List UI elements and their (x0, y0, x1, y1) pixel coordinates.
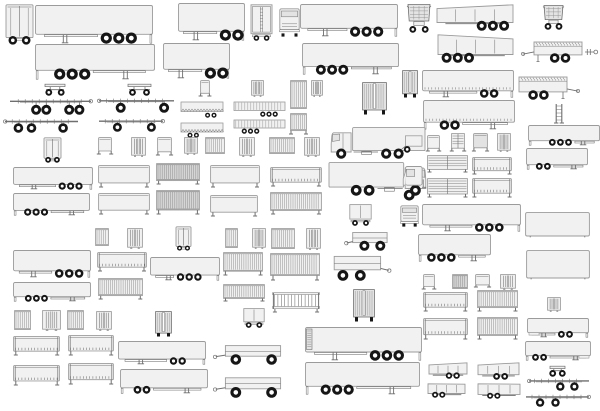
corrugated-icon (290, 113, 307, 135)
swap-curtain-icon (68, 335, 114, 356)
corrugated-icon (452, 274, 468, 290)
chassis-rear-drawing (549, 365, 566, 377)
corrugated-panel-drawing (14, 310, 31, 331)
semitrailer-icon (305, 362, 420, 395)
truck-cab-drawing (400, 165, 427, 201)
semitrailer-icon (118, 341, 206, 365)
container-chassis-drawing (527, 377, 591, 391)
swap-pallets-icon (427, 178, 468, 198)
swap-body-drawing (210, 195, 258, 217)
swap-body-small-drawing (157, 137, 172, 156)
pallet-stack-drawing (427, 155, 468, 173)
container-chassis-drawing (8, 96, 93, 115)
flatbed-drawbar-trailer-drawing (213, 343, 282, 365)
container-chassis-drawing (97, 117, 165, 132)
chassis-rear-icon (549, 365, 566, 377)
box-semitrailer-drawing (528, 125, 600, 146)
tipper-icon (477, 362, 520, 380)
chassis-icon (527, 377, 591, 391)
box-rear-icon (250, 4, 273, 41)
corrugated-icon (95, 228, 109, 247)
doors-front-icon (96, 311, 112, 331)
corrugated-icon (205, 137, 225, 155)
swap-plain-icon (423, 274, 435, 290)
curtain-swap-body-drawing (13, 336, 60, 356)
tipper-semitrailer-drawing (436, 4, 514, 31)
tipper-trailer-small-drawing (428, 362, 468, 379)
pallet-stack-drawing (427, 178, 468, 198)
box-truck-rear-drawing (250, 4, 273, 41)
box-semitrailer-drawing (422, 204, 521, 232)
corrugated-icon (156, 163, 200, 185)
swap-body-small-drawing (427, 135, 440, 152)
drawbar-flatbed-icon (333, 253, 391, 281)
curtain-swap-body-drawing (13, 365, 60, 386)
cab-side-icon (400, 165, 427, 201)
doors-front-icon (239, 137, 255, 157)
swap-plain-icon (475, 274, 490, 288)
swap-body-small-drawing (200, 80, 210, 97)
semitrailer-icon (120, 369, 208, 394)
container-doors-drawing (251, 80, 264, 97)
step-deck-trailer-drawing (527, 318, 589, 338)
swap-curtain-icon (13, 365, 60, 386)
corrugated-icon (477, 290, 518, 312)
swap-curtain-icon (423, 318, 468, 340)
flatbed-drawbar-trailer-drawing (213, 375, 282, 398)
curtain-swap-body-drawing (68, 363, 114, 385)
corrugated-swap-body-drawing (98, 278, 143, 300)
tipper-icon (436, 4, 514, 31)
box-semitrailer-drawing (35, 44, 155, 80)
semitrailer-icon (418, 234, 491, 262)
iso-container-small-drawing (452, 274, 468, 290)
corrugated-icon (14, 310, 31, 331)
curtain-flatbed-drawing (180, 101, 224, 118)
flatbed-strip-icon (233, 118, 286, 134)
step-deck-trailer-drawing (525, 341, 591, 361)
corrugated-panel-drawing (269, 137, 295, 155)
swap-plain-icon (473, 133, 488, 152)
corrugated-icon (271, 228, 295, 250)
doors-front-icon (497, 133, 511, 152)
semitrailer-icon (528, 125, 600, 146)
truck-rear-icon (349, 204, 372, 226)
container-doors-drawing (42, 310, 61, 331)
container-doors-drawing (239, 137, 255, 157)
swap-body-drawing (98, 193, 150, 215)
container-rear-drawing (402, 70, 418, 98)
container-chassis-drawing (524, 393, 591, 407)
swap-plain-icon (210, 195, 258, 217)
corrugated-icon (156, 190, 200, 215)
container-doors-drawing (304, 137, 320, 157)
chassis-icon (8, 96, 93, 115)
box-semitrailer-drawing (300, 4, 398, 37)
doors-front-icon (42, 310, 61, 331)
flatbed-trailer-low-drawing (477, 383, 521, 399)
curtain-swap-body-drawing (270, 167, 322, 187)
container-rear-icon (362, 82, 387, 115)
tipper-icon (428, 362, 468, 379)
tipper-icon (437, 34, 514, 63)
dump-rear-icon (406, 3, 432, 33)
dump-truck-rear-drawing (406, 3, 432, 33)
drawbar-flatbed-icon (213, 343, 282, 365)
swap-curtain-icon (13, 336, 60, 356)
swap-body-small-drawing (423, 274, 435, 290)
support-legs-drawing (552, 103, 566, 124)
box-semitrailer-drawing (526, 148, 588, 170)
container-doors-drawing (184, 137, 198, 155)
box-semitrailer-drawing (118, 341, 206, 365)
trailer-rear-icon (43, 137, 62, 163)
box-semitrailer-drawing (13, 167, 93, 190)
container-doors-drawing (96, 311, 112, 331)
container-chassis-drawing (3, 117, 80, 133)
dump-trailer-icon (521, 41, 583, 63)
box-semitrailer-drawing (178, 3, 245, 41)
box-semitrailer-drawing (13, 282, 91, 302)
hitch-frag-icon (585, 45, 600, 59)
semitrailer-icon (423, 100, 515, 130)
container-rear-large-drawing (362, 82, 387, 115)
dump-drawbar-trailer-drawing (518, 76, 580, 100)
doors-front-icon (251, 80, 264, 97)
corrugated-swap-body-drawing (477, 317, 518, 340)
chassis-icon (524, 393, 591, 407)
container-doors-drawing (500, 274, 516, 290)
curtain-swap-body-drawing (97, 252, 147, 272)
semitrailer-icon (300, 4, 398, 37)
trailer-body-blank-drawing (525, 212, 590, 238)
corrugated-icon (225, 228, 238, 249)
curtain-flatbed-drawing (180, 122, 224, 138)
container-chassis-drawing (97, 96, 176, 113)
box-semitrailer-drawing (305, 362, 420, 395)
swap-plain-icon (427, 135, 440, 152)
semitrailer-icon (35, 5, 153, 44)
chassis-rear-icon (127, 83, 152, 96)
dropside-trailer-drawing (333, 253, 391, 281)
doors-front-icon (311, 80, 323, 97)
trailer-rear-icon (175, 226, 192, 251)
doors-front-icon (184, 137, 198, 155)
swap-curtain-icon (472, 157, 512, 175)
semitrailer-icon (13, 193, 90, 216)
corrugated-swap-body-drawing (223, 252, 263, 276)
tipper-icon (477, 383, 521, 399)
semitrailer-icon (13, 167, 93, 190)
hitch-fragment-drawing (585, 45, 600, 59)
swap-plain-icon (157, 137, 172, 156)
dump-trailer-icon (518, 76, 580, 100)
drawbar-flatbed-icon (213, 375, 282, 398)
swap-body-small-drawing (98, 137, 112, 155)
iso-container-drawing (156, 190, 200, 215)
chassis-rear-drawing (127, 83, 152, 96)
semitrailer-icon (422, 204, 521, 232)
plain-box-icon (526, 250, 590, 280)
semitrailer-icon (525, 341, 591, 361)
flatbed-trailer-low-drawing (427, 383, 466, 398)
chassis-icon (97, 96, 176, 113)
corrugated-panel-drawing (290, 80, 307, 110)
van-trailer-rear-drawing (43, 137, 62, 163)
semitrailer-icon (178, 3, 245, 41)
truck-front-icon (400, 205, 419, 227)
doors-front-icon (127, 228, 143, 249)
flatbed-strip-icon (233, 100, 286, 117)
box-semitrailer-drawing (13, 193, 90, 216)
doors-front-icon (500, 274, 516, 290)
container-rear-tall-drawing (353, 289, 375, 322)
curtain-semitrailer-drawing (423, 100, 515, 130)
truck-front-icon (279, 8, 300, 37)
chassis-rear-drawing (44, 83, 66, 96)
trailer-body-blank-drawing (526, 250, 590, 280)
box-semitrailer-drawing (120, 369, 208, 394)
doors-front-icon (547, 297, 561, 312)
curtain-swap-body-drawing (423, 318, 468, 340)
mini-trailer-drawing (400, 135, 423, 153)
corrugated-swap-body-drawing (270, 253, 320, 281)
corrugated-icon (269, 137, 295, 155)
swap-plain-icon (200, 80, 210, 97)
corrugated-swap-body-drawing (223, 284, 265, 302)
semitrailer-icon (302, 43, 399, 75)
semitrailer-icon (526, 148, 588, 170)
swap-pallets-icon (427, 155, 468, 173)
dump-truck-rear-drawing (542, 4, 565, 30)
curtain-swap-body-drawing (472, 157, 512, 175)
swap-curtain-icon (423, 292, 468, 312)
box-semitrailer-drawing (418, 234, 491, 262)
container-rear-icon (155, 311, 172, 337)
swap-curtain-icon (97, 252, 147, 272)
semitrailer-icon (163, 43, 230, 79)
corrugated-panel-drawing (67, 310, 84, 331)
corrugated-icon (98, 278, 143, 300)
flatbed-drawbar-trailer-drawing (345, 230, 388, 251)
open-frame-icon (272, 292, 320, 313)
swap-plain-icon (98, 137, 112, 155)
container-doors-drawing (131, 137, 146, 157)
curtain-swap-body-drawing (423, 292, 468, 312)
semitrailer-icon (13, 282, 91, 302)
van-trailer-rear-drawing (5, 4, 34, 45)
corrugated-icon (270, 192, 322, 215)
container-rear-drawing (155, 311, 172, 337)
chassis-icon (97, 117, 165, 132)
vehicle-clipart-sheet (0, 0, 600, 411)
box-semitrailer-drawing (163, 43, 230, 79)
rail-frame-drawing (272, 292, 320, 313)
curtain-semitrailer-drawing (422, 70, 514, 98)
semitrailer-icon (527, 318, 589, 338)
corrugated-swap-body-drawing (477, 290, 518, 312)
chassis-icon (3, 117, 80, 133)
plain-box-icon (525, 212, 590, 238)
swap-body-drawing (98, 165, 150, 188)
corrugated-icon (477, 317, 518, 340)
swap-plain-icon (98, 193, 150, 215)
container-doors-drawing (311, 80, 323, 97)
container-rear-icon (353, 289, 375, 322)
swap-curtain-icon (472, 178, 512, 198)
corrugated-icon (270, 253, 320, 281)
dump-drawbar-trailer-drawing (521, 41, 583, 63)
stake-flatbed-drawing (233, 118, 286, 134)
tipper-trailer-small-drawing (477, 362, 520, 380)
corrugated-panel-small-drawing (225, 228, 238, 249)
trailer-rear-icon (5, 4, 34, 45)
semitrailer-icon (150, 257, 220, 281)
doors-front-icon (131, 137, 146, 157)
corrugated-icon (67, 310, 84, 331)
corrugated-panel-drawing (271, 228, 295, 250)
curtain-strip-icon (180, 101, 224, 118)
corrugated-icon (223, 284, 265, 302)
pallet-stack-small-drawing (451, 133, 465, 152)
semitrailer-icon (13, 250, 91, 278)
doors-front-icon (304, 137, 320, 157)
container-doors-drawing (497, 133, 511, 152)
container-rear-icon (402, 70, 418, 98)
box-semitrailer-drawing (35, 5, 153, 44)
van-trailer-rear-small-drawing (175, 226, 192, 251)
reefer-semitrailer-drawing (305, 327, 422, 361)
swap-body-small-drawing (475, 274, 490, 288)
box-semitrailer-drawing (302, 43, 399, 75)
corrugated-swap-body-drawing (270, 192, 322, 215)
truck-front-drawing (279, 8, 300, 37)
truck-rear-icon (243, 308, 265, 328)
container-doors-drawing (306, 228, 321, 250)
semitrailer-icon (422, 70, 514, 98)
box-semitrailer-drawing (150, 257, 220, 281)
swap-plain-icon (98, 165, 150, 188)
container-doors-drawing (127, 228, 143, 249)
box-semitrailer-drawing (13, 250, 91, 278)
corrugated-panel-drawing (290, 113, 307, 135)
dump-rear-icon (542, 4, 565, 30)
stake-flatbed-drawing (233, 100, 286, 117)
corrugated-panel-drawing (205, 137, 225, 155)
semitrailer-icon (35, 44, 155, 80)
chassis-rear-icon (44, 83, 66, 96)
doors-front-icon (306, 228, 321, 250)
semitrailer-icon (305, 327, 422, 361)
iso-container-drawing (156, 163, 200, 185)
corrugated-icon (223, 252, 263, 276)
curtain-swap-body-drawing (68, 335, 114, 356)
container-doors-small-drawing (547, 297, 561, 312)
swap-plain-icon (210, 165, 260, 188)
drawbar-flatbed-icon (345, 230, 388, 251)
swap-body-drawing (210, 165, 260, 188)
tipper-semitrailer-drawing (437, 34, 514, 63)
swap-body-small-drawing (473, 133, 488, 152)
corrugated-panel-small-drawing (95, 228, 109, 247)
truck-front-small-drawing (400, 205, 419, 227)
legs-front-icon (552, 103, 566, 124)
truck-rear-small-drawing (349, 204, 372, 226)
swap-pallets-icon (451, 133, 465, 152)
mini-trailer-icon (400, 135, 423, 153)
corrugated-icon (290, 80, 307, 110)
curtain-swap-body-drawing (472, 178, 512, 198)
swap-curtain-icon (270, 167, 322, 187)
container-doors-drawing (252, 228, 266, 249)
curtain-strip-icon (180, 122, 224, 138)
truck-rear-small-drawing (243, 308, 265, 328)
tipper-icon (427, 383, 466, 398)
swap-curtain-icon (68, 363, 114, 385)
doors-front-icon (252, 228, 266, 249)
